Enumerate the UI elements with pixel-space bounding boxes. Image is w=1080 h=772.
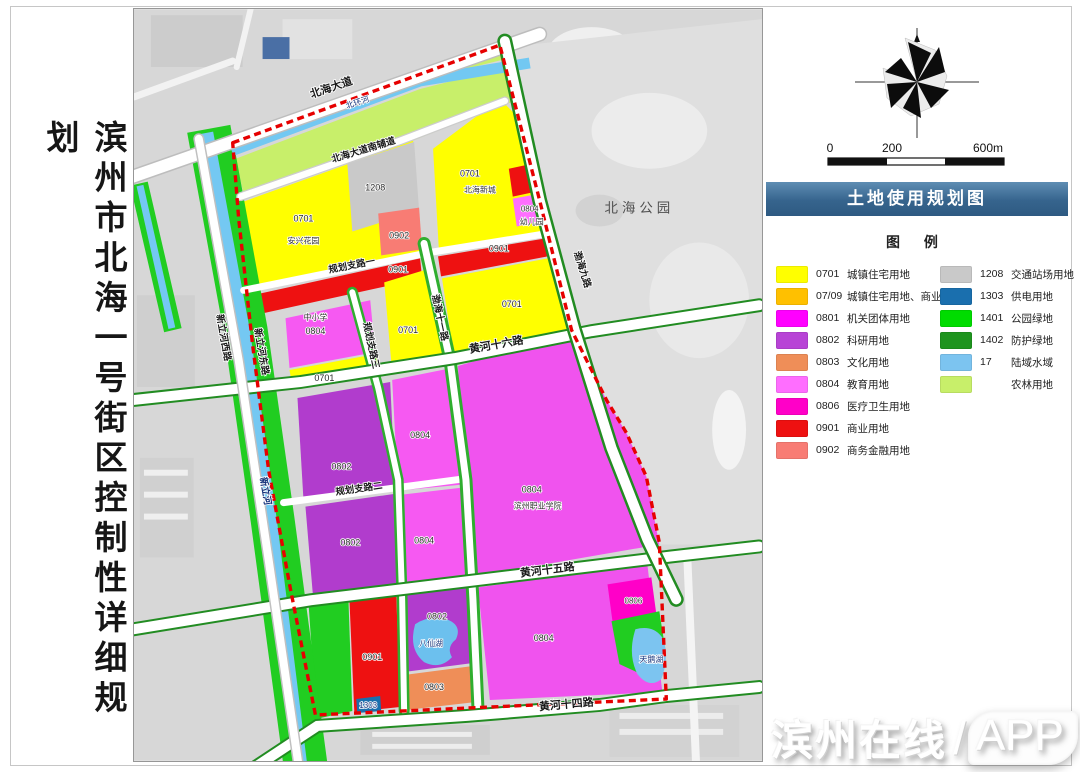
scale-0: 0 bbox=[827, 141, 834, 155]
label-baxianhu: 八仙湖 bbox=[419, 638, 443, 648]
label-tianehu: 天鹅湖 bbox=[639, 654, 663, 664]
legend-code: 07/09 bbox=[816, 290, 842, 302]
legend-label: 防护绿地 bbox=[1011, 333, 1053, 348]
legend-swatch bbox=[940, 354, 972, 371]
legend-row: 1208交通站场用地 bbox=[940, 263, 1068, 285]
legend-code: 17 bbox=[980, 356, 1006, 368]
right-panel: 0 200 600m 土地使用规划图 图 例 0701城镇住宅用地 07/09城… bbox=[764, 8, 1070, 762]
legend-swatch bbox=[776, 398, 808, 415]
title-column: 滨州市北海一号街区控制性详细规划 bbox=[36, 120, 132, 740]
label-0804-b: 0804 bbox=[414, 535, 434, 545]
legend-row: 0806医疗卫生用地 bbox=[776, 395, 941, 417]
scale-200: 200 bbox=[882, 141, 902, 155]
map-title: 土地使用规划图 bbox=[847, 189, 987, 208]
legend-label: 文化用地 bbox=[847, 355, 889, 370]
legend-code: 1402 bbox=[980, 334, 1006, 346]
legend-label: 公园绿地 bbox=[1011, 311, 1053, 326]
legend-label: 机关团体用地 bbox=[847, 311, 910, 326]
label-0804-school: 0804 bbox=[305, 326, 325, 336]
watermark-name: 滨州在线 bbox=[771, 707, 947, 768]
legend-row: 17陆域水域 bbox=[940, 351, 1068, 373]
legend-swatch bbox=[776, 442, 808, 459]
legend-row: 1402防护绿地 bbox=[940, 329, 1068, 351]
legend-swatch bbox=[940, 288, 972, 305]
planning-map: 北海大道 北环河 北海大道南辅道 1208 0902 0701 安兴花园 070… bbox=[133, 8, 763, 762]
legend-label: 农林用地 bbox=[1011, 377, 1053, 392]
legend-swatch bbox=[940, 332, 972, 349]
label-0802-b: 0802 bbox=[340, 537, 360, 547]
legend-label: 教育用地 bbox=[847, 377, 889, 392]
map-title-banner: 土地使用规划图 bbox=[766, 182, 1068, 216]
compass-rose bbox=[822, 24, 1012, 144]
legend-row: 0802科研用地 bbox=[776, 329, 941, 351]
legend-row: 1303供电用地 bbox=[940, 285, 1068, 307]
legend-row: 0902商务金融用地 bbox=[776, 439, 941, 461]
label-0804-kindergarten: 0804 bbox=[521, 205, 539, 214]
legend-row: 0901商业用地 bbox=[776, 417, 941, 439]
legend-code: 0801 bbox=[816, 312, 842, 324]
legend-row: 1401公园绿地 bbox=[940, 307, 1068, 329]
label-binzhouzhiyuan: 滨州职业学院 bbox=[514, 501, 562, 511]
watermark: 滨州在线 / APP bbox=[771, 707, 1078, 768]
scale-600m: 600m bbox=[973, 141, 1003, 155]
legend-swatch bbox=[776, 376, 808, 393]
legend-code: 0902 bbox=[816, 444, 842, 456]
legend-row: 0801机关团体用地 bbox=[776, 307, 941, 329]
label-0701-mid: 0701 bbox=[398, 325, 418, 335]
legend-label: 城镇住宅用地 bbox=[847, 267, 910, 282]
legend-label: 科研用地 bbox=[847, 333, 889, 348]
label-0804-big: 0804 bbox=[522, 485, 542, 495]
label-0804-a: 0804 bbox=[410, 430, 430, 440]
legend-code: 0803 bbox=[816, 356, 842, 368]
legend-swatch bbox=[776, 310, 808, 327]
scale-bar: 0 200 600m bbox=[816, 138, 1016, 174]
label-anxing: 安兴花园 bbox=[288, 235, 320, 245]
label-1303: 1303 bbox=[359, 701, 377, 710]
page-title: 滨州市北海一号街区控制性详细规划 bbox=[36, 120, 132, 740]
legend-column-right: 1208交通站场用地 1303供电用地 1401公园绿地 1402防护绿地 17… bbox=[940, 263, 1068, 395]
legend-column-left: 0701城镇住宅用地 07/09城镇住宅用地、商业用地 0801机关团体用地 0… bbox=[776, 263, 941, 461]
legend-label: 供电用地 bbox=[1011, 289, 1053, 304]
legend-swatch bbox=[940, 310, 972, 327]
map-svg: 北海大道 北环河 北海大道南辅道 1208 0902 0701 安兴花园 070… bbox=[134, 9, 762, 761]
planning-document-page: 滨州市北海一号街区控制性详细规划 bbox=[0, 0, 1080, 772]
label-0901-strip-left: 0901 bbox=[388, 264, 408, 274]
label-0803: 0803 bbox=[424, 682, 444, 692]
legend-row: 0803文化用地 bbox=[776, 351, 941, 373]
legend-code: 0802 bbox=[816, 334, 842, 346]
label-0804-bottom: 0804 bbox=[534, 633, 554, 643]
label-0802-c: 0802 bbox=[427, 611, 447, 621]
label-0901-bottom: 0901 bbox=[362, 652, 382, 662]
legend-label: 交通站场用地 bbox=[1011, 267, 1074, 282]
legend-label: 商务金融用地 bbox=[847, 443, 910, 458]
watermark-suffix: APP bbox=[968, 711, 1078, 765]
label-0701-b: 0701 bbox=[460, 169, 480, 179]
legend-label: 医疗卫生用地 bbox=[847, 399, 910, 414]
label-zhongxiaoxue: 中小学 bbox=[303, 312, 327, 322]
legend-swatch bbox=[776, 266, 808, 283]
label-0701-east: 0701 bbox=[502, 299, 522, 309]
legend-row: 农林用地 bbox=[940, 373, 1068, 395]
legend-title: 图 例 bbox=[764, 232, 1070, 252]
legend-code: 0806 bbox=[816, 400, 842, 412]
legend-swatch bbox=[940, 266, 972, 283]
legend-swatch bbox=[776, 354, 808, 371]
label-0701-a: 0701 bbox=[293, 214, 313, 224]
label-youeryuan: 幼儿园 bbox=[520, 217, 544, 227]
legend-code: 1401 bbox=[980, 312, 1006, 324]
legend-code: 0804 bbox=[816, 378, 842, 390]
legend-swatch bbox=[776, 332, 808, 349]
legend-row: 0701城镇住宅用地 bbox=[776, 263, 941, 285]
legend-code: 0701 bbox=[816, 268, 842, 280]
legend-swatch bbox=[776, 420, 808, 437]
watermark-slash: / bbox=[953, 711, 966, 765]
label-beihaixincheng: 北海新城 bbox=[464, 185, 496, 195]
legend-code: 0901 bbox=[816, 422, 842, 434]
legend-swatch bbox=[776, 288, 808, 305]
legend-label: 商业用地 bbox=[847, 421, 889, 436]
legend-code: 1208 bbox=[980, 268, 1006, 280]
label-1208: 1208 bbox=[365, 183, 385, 193]
legend-label: 陆域水域 bbox=[1011, 355, 1053, 370]
label-0806: 0806 bbox=[625, 596, 643, 605]
legend-row: 0804教育用地 bbox=[776, 373, 941, 395]
label-0902: 0902 bbox=[389, 230, 409, 240]
label-beihai-park: 北海公园 bbox=[605, 201, 675, 216]
label-0701-small: 0701 bbox=[314, 373, 334, 383]
label-0802-a: 0802 bbox=[331, 462, 351, 472]
legend-row: 07/09城镇住宅用地、商业用地 bbox=[776, 285, 941, 307]
label-0901-strip-right: 0901 bbox=[489, 243, 509, 253]
legend-swatch bbox=[940, 376, 972, 393]
legend-code: 1303 bbox=[980, 290, 1006, 302]
